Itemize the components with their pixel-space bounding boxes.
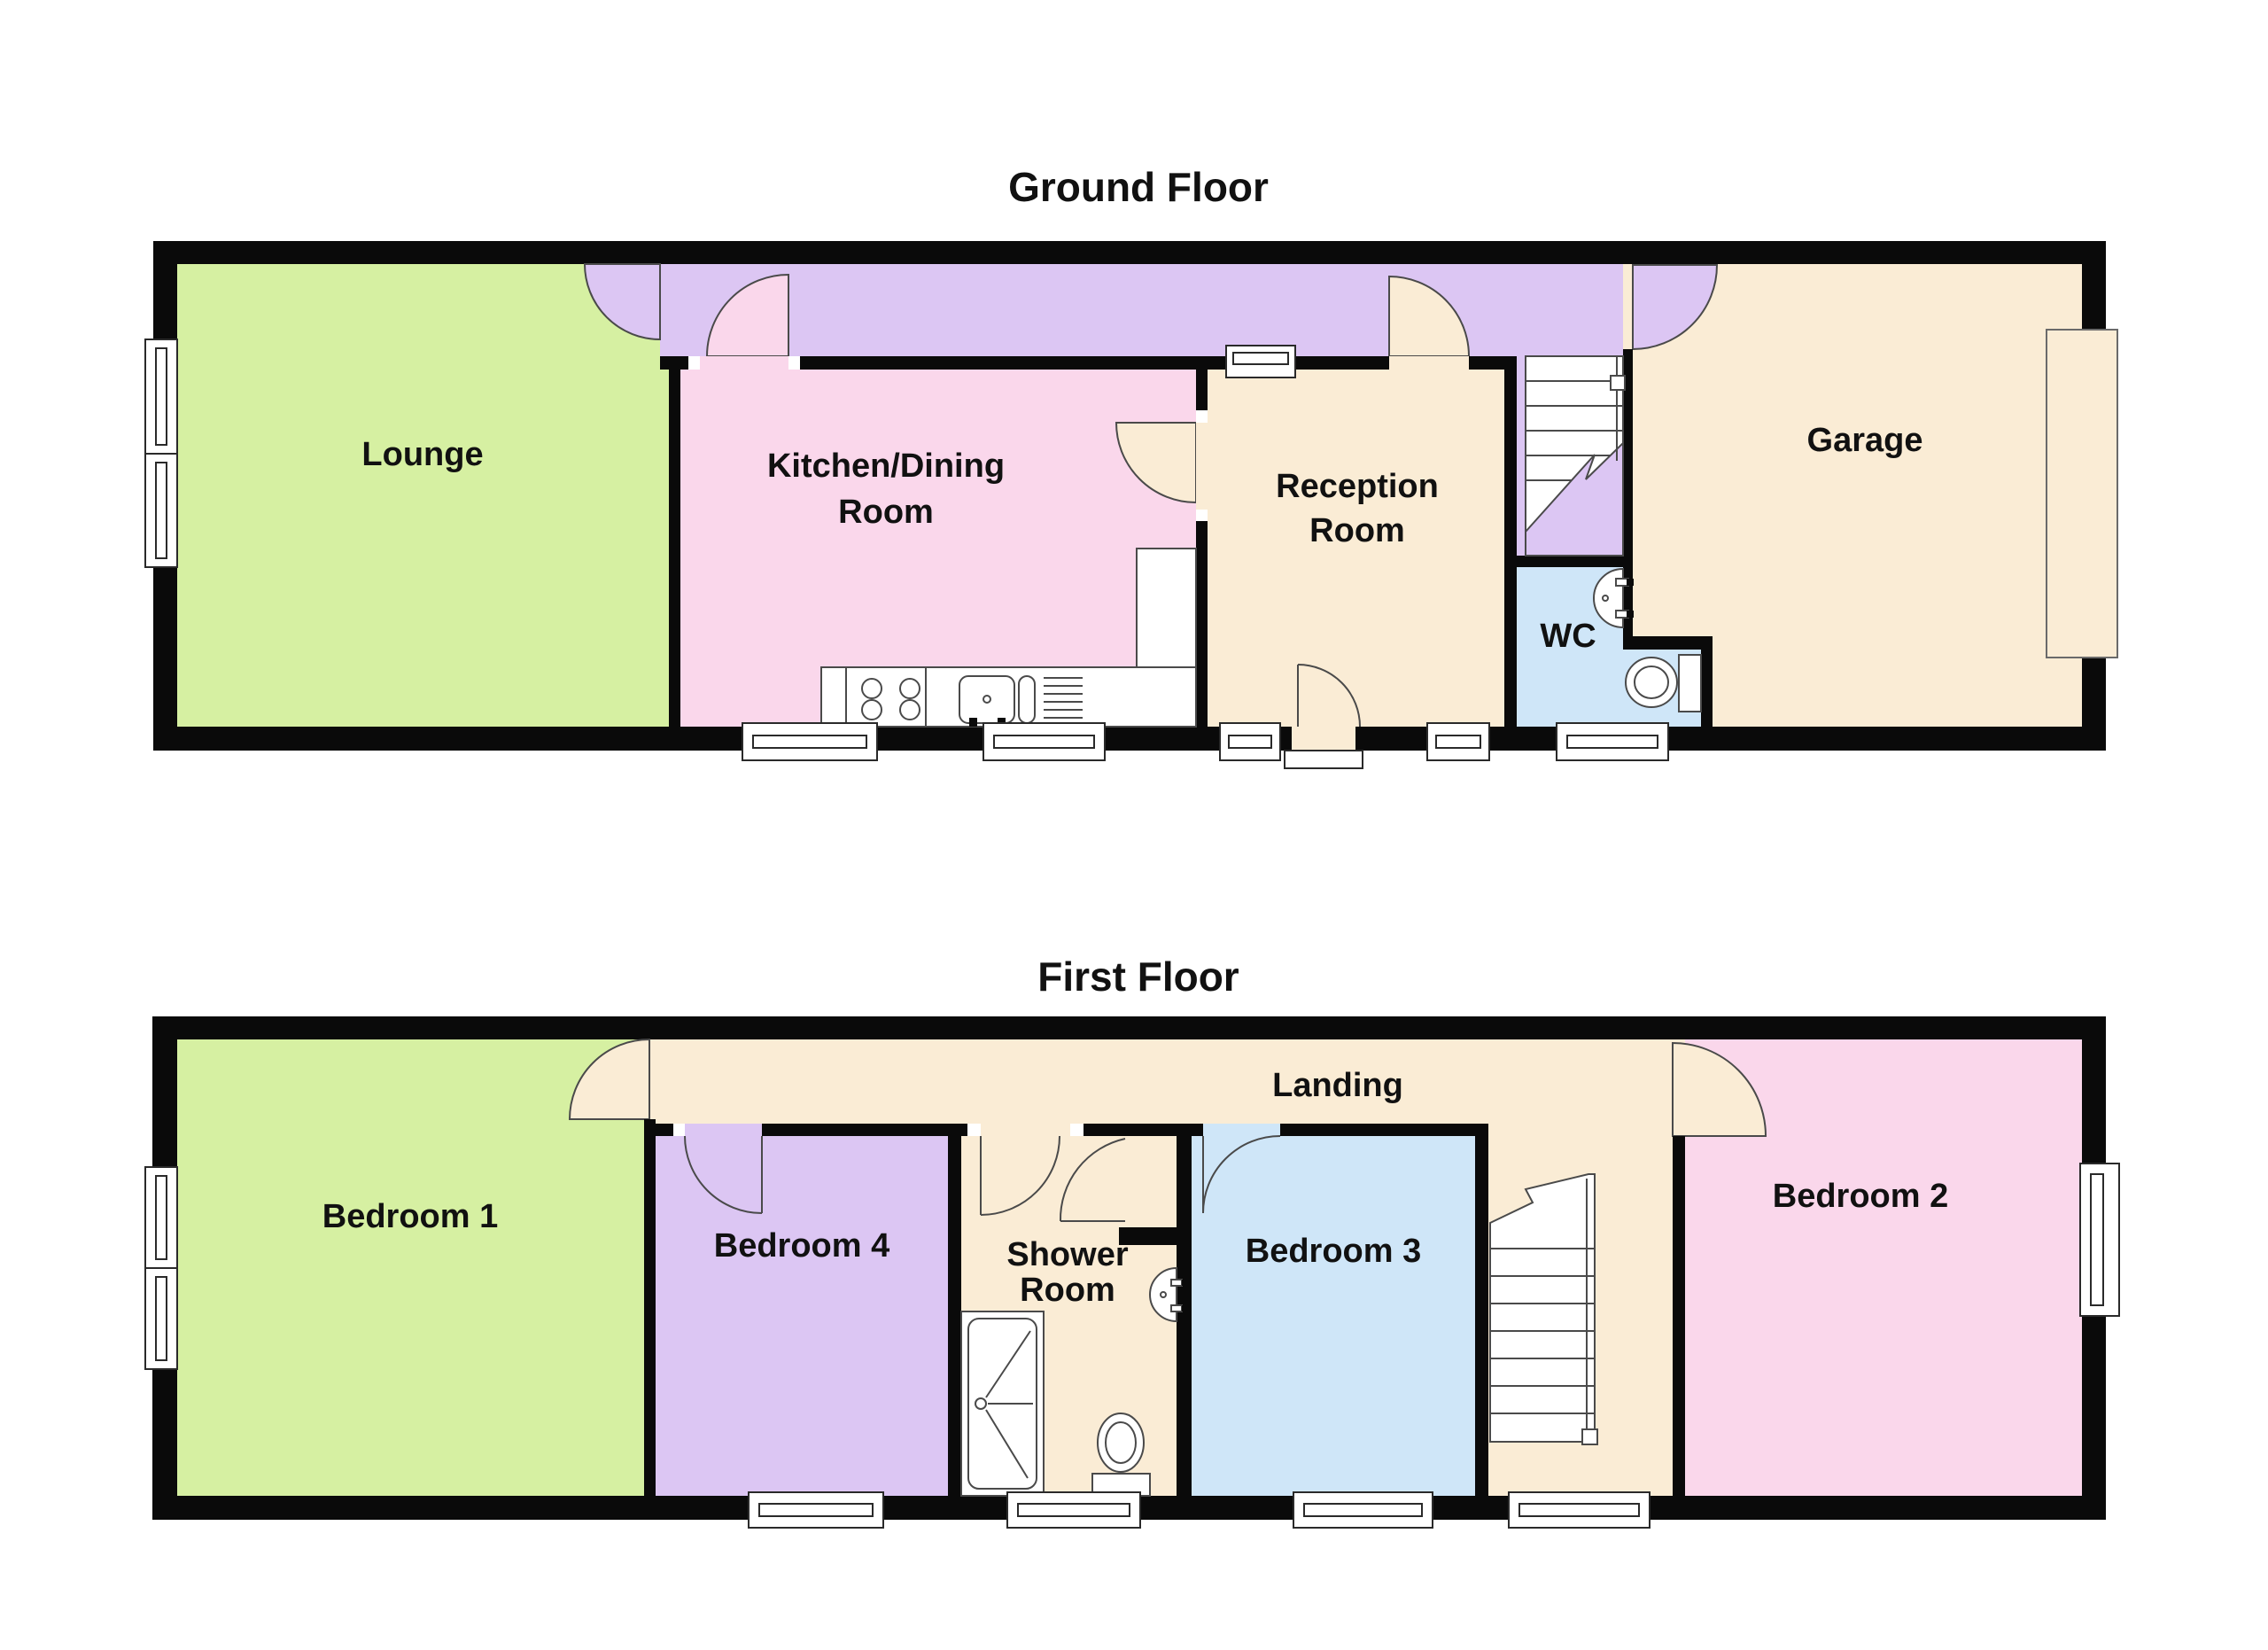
room-bedroom-4 <box>656 1136 948 1496</box>
internal-window-hall-reception <box>1226 346 1295 377</box>
hob-burner-icon <box>862 700 882 720</box>
ground-staircase <box>1526 356 1625 556</box>
window-frame <box>1293 1492 1433 1528</box>
floorplan-drawing: Ground Floor First Floor <box>0 0 2268 1650</box>
kitchen-label-line1: Kitchen/Dining <box>767 448 1005 485</box>
garage-label: Garage <box>1807 422 1923 459</box>
shower-door-opening <box>981 1124 1070 1136</box>
hob-burner-icon <box>900 700 920 720</box>
first-floor-plan: Bedroom 1 Bedroom 4 Shower Room Bedroom … <box>145 1016 2119 1528</box>
door-jamb <box>788 356 800 370</box>
wall-bed4-top-seg <box>656 1124 673 1136</box>
wall-bed4-top-seg <box>762 1124 948 1136</box>
kitchen-label-line2: Room <box>838 494 934 531</box>
garage-vehicle-door <box>2047 330 2117 658</box>
wc-toilet-cistern <box>1679 655 1701 712</box>
wall-wc-jog <box>1623 636 1713 650</box>
wall-bed1-bed4 <box>644 1119 656 1496</box>
window-frame <box>1557 723 1668 760</box>
wall-shower-top-seg <box>1084 1124 1192 1136</box>
window-frame <box>1007 1492 1140 1528</box>
window-frame <box>742 723 877 760</box>
wall-wc-right <box>1701 650 1713 727</box>
wc-tap-icon <box>1627 611 1634 618</box>
lounge-label: Lounge <box>361 436 483 473</box>
wc-tap-icon <box>1616 611 1628 618</box>
wall-bed4-shower <box>948 1124 961 1496</box>
window-frame <box>983 723 1105 760</box>
shower-label-line1: Shower <box>1006 1236 1128 1273</box>
window-frame <box>2080 1164 2119 1316</box>
wall-stairs-bed2 <box>1673 1136 1685 1496</box>
door-jamb <box>1196 410 1208 423</box>
stair-newel <box>1611 376 1625 390</box>
reception-door-opening <box>1389 356 1469 370</box>
shower-label-line2: Room <box>1020 1272 1115 1309</box>
reception-label-line2: Room <box>1309 512 1405 549</box>
wall-bed3-stairs <box>1475 1124 1488 1496</box>
front-door-step <box>1285 751 1363 768</box>
bedroom3-door-opening <box>1203 1124 1280 1136</box>
wall-hall-top-seg <box>660 356 688 370</box>
kitchen-counter-return <box>1137 549 1196 667</box>
bedroom4-label: Bedroom 4 <box>714 1227 889 1265</box>
basin-tap-icon <box>1171 1280 1182 1286</box>
bedroom1-label: Bedroom 1 <box>322 1198 498 1235</box>
wc-tap-icon <box>1616 579 1628 586</box>
kitchen-door-opening <box>700 356 788 370</box>
window-frame <box>749 1492 883 1528</box>
window-frame <box>1226 346 1295 377</box>
door-jamb <box>688 356 700 370</box>
room-hallway <box>660 264 1623 356</box>
floorplan-page: Ground Floor First Floor <box>0 0 2268 1650</box>
basin-tap-icon <box>1182 1305 1189 1311</box>
wc-toilet-bowl <box>1626 658 1677 707</box>
ground-floor-plan: Lounge Kitchen/Dining Room Reception Roo… <box>145 241 2117 768</box>
wall-lounge-kitchen <box>669 370 680 727</box>
first-floor-title: First Floor <box>1037 953 1239 1000</box>
kitchen-drainer <box>1019 676 1035 723</box>
door-jamb <box>967 1124 981 1136</box>
kitchen-reception-opening <box>1196 423 1208 510</box>
landing-label: Landing <box>1272 1067 1403 1104</box>
basin-tap-icon <box>1171 1305 1182 1311</box>
wall-hall-top-seg <box>1295 356 1389 370</box>
door-jamb <box>673 1124 685 1136</box>
wall-bed3-top-seg <box>1280 1124 1475 1136</box>
wall-shower-top-seg <box>961 1124 967 1136</box>
wall-under-stairs <box>1517 556 1633 567</box>
wall-garage-left <box>1623 349 1633 636</box>
reception-label-line1: Reception <box>1276 468 1439 505</box>
ground-floor-title: Ground Floor <box>1008 164 1269 210</box>
window-frame <box>145 1167 177 1268</box>
bedroom4-door-opening <box>685 1124 762 1136</box>
room-bedroom-3 <box>1192 1136 1475 1496</box>
door-jamb <box>1070 1124 1084 1136</box>
hob-burner-icon <box>862 679 882 698</box>
kitchen-sink-bowl <box>959 676 1014 723</box>
window-frame <box>145 339 177 454</box>
bedroom2-label: Bedroom 2 <box>1773 1178 1948 1215</box>
front-door-opening <box>1292 727 1355 751</box>
wall-bed3-top-seg <box>1192 1124 1203 1136</box>
window-frame <box>145 1268 177 1369</box>
basin-tap-icon <box>1182 1280 1189 1286</box>
wc-tap-icon <box>1627 579 1634 586</box>
hob-burner-icon <box>900 679 920 698</box>
wall-reception-wc <box>1504 356 1517 727</box>
first-staircase <box>1490 1174 1597 1444</box>
bedroom3-label: Bedroom 3 <box>1246 1233 1421 1270</box>
door-jamb <box>1196 510 1208 521</box>
window-frame <box>145 454 177 567</box>
wall-hall-top-seg <box>800 356 1226 370</box>
kitchen-tap-icon <box>969 718 977 727</box>
room-lounge <box>177 264 669 727</box>
wc-label: WC <box>1540 618 1596 655</box>
window-frame <box>1509 1492 1650 1528</box>
stair-newel <box>1582 1429 1597 1444</box>
